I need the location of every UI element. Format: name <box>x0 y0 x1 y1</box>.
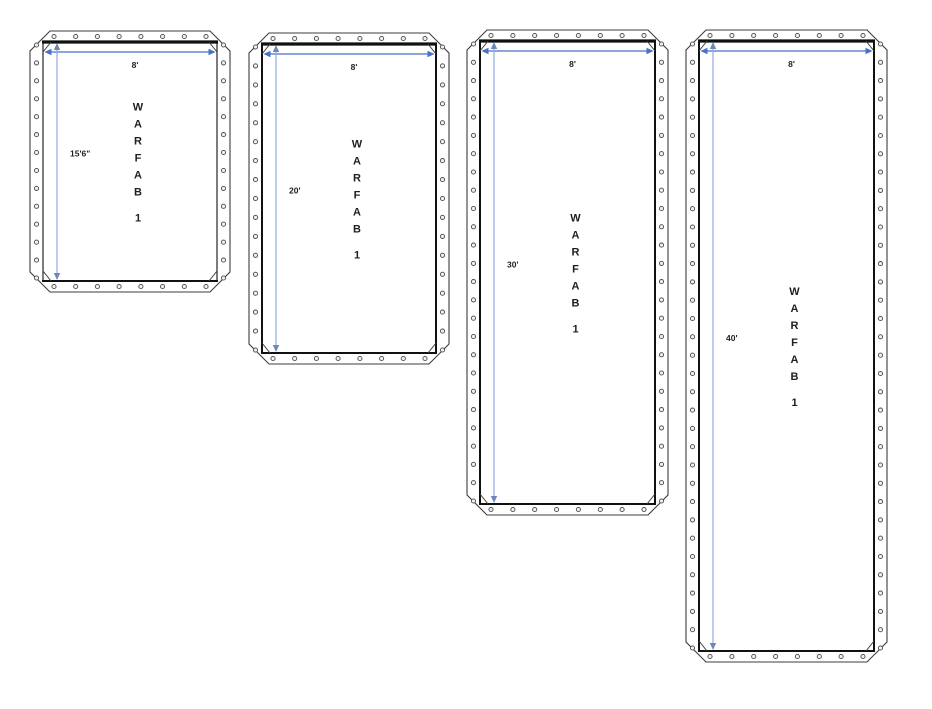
grommet <box>471 170 475 174</box>
grommet <box>423 36 427 40</box>
grommet <box>690 609 694 613</box>
grommet <box>690 518 694 522</box>
grommet <box>690 133 694 137</box>
panel-number: 1 <box>791 397 797 409</box>
grommet <box>440 310 444 314</box>
grommet <box>52 284 56 288</box>
grommet <box>878 152 882 156</box>
grommet <box>752 33 756 37</box>
grommet <box>471 133 475 137</box>
grommet <box>555 33 559 37</box>
grommet <box>878 445 882 449</box>
grommet <box>336 36 340 40</box>
grommet <box>253 310 257 314</box>
grommet <box>555 507 559 511</box>
grommet <box>659 225 663 229</box>
height-dimension-label: 15'6" <box>70 149 90 159</box>
panel-letter: W <box>352 139 363 151</box>
grommet <box>380 36 384 40</box>
grommet <box>471 206 475 210</box>
grommet <box>471 389 475 393</box>
grommet <box>401 356 405 360</box>
grommet <box>878 518 882 522</box>
grommet <box>878 170 882 174</box>
grommet <box>471 426 475 430</box>
grommet <box>34 115 38 119</box>
grommet <box>795 654 799 658</box>
grommet <box>253 253 257 257</box>
grommet <box>752 654 756 658</box>
grommet <box>659 42 663 46</box>
grommet <box>690 481 694 485</box>
grommet <box>293 356 297 360</box>
grommet <box>440 348 444 352</box>
grommet <box>730 654 734 658</box>
grommet <box>878 646 882 650</box>
grommet <box>423 356 427 360</box>
grommet <box>690 554 694 558</box>
grommet <box>74 284 78 288</box>
grommet <box>690 316 694 320</box>
grommet <box>690 207 694 211</box>
grommet <box>253 348 257 352</box>
grommet <box>253 291 257 295</box>
grommet <box>659 60 663 64</box>
grommet <box>533 507 537 511</box>
grommet <box>659 444 663 448</box>
grommet <box>253 83 257 87</box>
grommet <box>253 45 257 49</box>
grommet <box>659 334 663 338</box>
panel-number: 1 <box>354 250 360 262</box>
grommet <box>659 481 663 485</box>
grommet <box>117 284 121 288</box>
grommet <box>471 243 475 247</box>
grommet <box>690 371 694 375</box>
grommet <box>878 60 882 64</box>
grommet <box>690 188 694 192</box>
grommet <box>271 36 275 40</box>
grommet <box>471 444 475 448</box>
grommet <box>878 298 882 302</box>
grommet <box>690 152 694 156</box>
grommet <box>878 426 882 430</box>
panel-letter: W <box>133 102 144 114</box>
grommet <box>253 215 257 219</box>
grommet <box>708 654 712 658</box>
grommet <box>471 261 475 265</box>
grommet <box>659 133 663 137</box>
grommet <box>576 33 580 37</box>
grommet <box>690 445 694 449</box>
height-dimension-label: 40' <box>726 333 737 343</box>
grommet <box>878 97 882 101</box>
grommet <box>774 33 778 37</box>
grommet <box>440 178 444 182</box>
grommet <box>878 481 882 485</box>
panel-letter: R <box>134 136 142 148</box>
grommet <box>471 60 475 64</box>
grommet <box>471 481 475 485</box>
grommet <box>117 34 121 38</box>
panel-letter: W <box>789 286 800 298</box>
grommet <box>380 356 384 360</box>
grommet <box>659 353 663 357</box>
width-dimension-label: 8' <box>132 60 139 70</box>
grommet <box>690 42 694 46</box>
grommet <box>471 316 475 320</box>
grommet <box>471 462 475 466</box>
grommet <box>878 243 882 247</box>
grommet <box>221 43 225 47</box>
grommet <box>730 33 734 37</box>
grommet <box>34 168 38 172</box>
panel-8ft-x-20ft: 8'20'WARFAB1 <box>249 33 449 364</box>
grommet <box>795 33 799 37</box>
grommet <box>34 222 38 226</box>
grommet <box>690 408 694 412</box>
grommet <box>690 280 694 284</box>
height-dimension-label: 30' <box>507 260 518 270</box>
grommet <box>690 591 694 595</box>
grommet <box>253 234 257 238</box>
grommet <box>74 34 78 38</box>
width-dimension-label: 8' <box>351 62 358 72</box>
grommet <box>34 43 38 47</box>
panel-8ft-x-30ft: 8'30'WARFAB1 <box>467 30 668 515</box>
grommet <box>471 97 475 101</box>
grommet <box>690 97 694 101</box>
grommet <box>221 133 225 137</box>
panel-letter: B <box>353 224 361 236</box>
grommet <box>95 284 99 288</box>
grommet <box>659 298 663 302</box>
grommet <box>878 573 882 577</box>
grommet <box>34 97 38 101</box>
grommet <box>314 36 318 40</box>
grommet <box>878 408 882 412</box>
grommet <box>690 60 694 64</box>
panel-letter: A <box>572 281 580 293</box>
grommet <box>440 215 444 219</box>
grommet <box>471 225 475 229</box>
grommet <box>659 261 663 265</box>
grommet <box>690 262 694 266</box>
grommet <box>690 536 694 540</box>
grommet <box>271 356 275 360</box>
grommet <box>659 389 663 393</box>
grommet <box>471 353 475 357</box>
grommet <box>440 291 444 295</box>
grommet <box>659 188 663 192</box>
grommet <box>221 186 225 190</box>
panel-outer-outline <box>30 31 230 292</box>
grommet <box>817 33 821 37</box>
grommet <box>878 371 882 375</box>
grommet <box>878 353 882 357</box>
grommet <box>221 79 225 83</box>
grommet <box>253 102 257 106</box>
grommet <box>95 34 99 38</box>
grommet <box>659 206 663 210</box>
grommet <box>221 276 225 280</box>
grommet <box>34 61 38 65</box>
panel-letter: F <box>354 190 361 202</box>
grommet <box>690 646 694 650</box>
grommet <box>774 654 778 658</box>
grommet <box>598 33 602 37</box>
grommet <box>253 64 257 68</box>
panel-drawing: 8'15'6"WARFAB1 <box>30 31 230 292</box>
grommet <box>690 628 694 632</box>
panel-8ft-x-15ft6: 8'15'6"WARFAB1 <box>30 31 230 292</box>
grommet <box>182 284 186 288</box>
grommet <box>34 133 38 137</box>
grommet <box>253 272 257 276</box>
height-dimension-label: 20' <box>289 186 300 196</box>
grommet <box>659 280 663 284</box>
grommet <box>440 45 444 49</box>
grommet <box>690 170 694 174</box>
grommet <box>598 507 602 511</box>
grommet <box>401 36 405 40</box>
grommet <box>440 253 444 257</box>
grommet <box>642 33 646 37</box>
grommet <box>659 170 663 174</box>
panel-letter: B <box>791 371 799 383</box>
panel-number: 1 <box>572 324 578 336</box>
grommet <box>253 178 257 182</box>
grommet <box>878 628 882 632</box>
panel-letter: B <box>134 187 142 199</box>
grommet <box>659 408 663 412</box>
grommet <box>690 463 694 467</box>
grommet <box>839 654 843 658</box>
panel-letter: R <box>791 320 799 332</box>
grommet <box>708 33 712 37</box>
grommet <box>878 335 882 339</box>
grommet <box>878 463 882 467</box>
grommet <box>878 42 882 46</box>
grommet <box>358 356 362 360</box>
grommet <box>690 573 694 577</box>
grommet <box>659 79 663 83</box>
grommet <box>358 36 362 40</box>
width-dimension-label: 8' <box>788 59 795 69</box>
grommet <box>253 196 257 200</box>
grommet <box>471 408 475 412</box>
grommet <box>878 316 882 320</box>
grommet <box>690 79 694 83</box>
grommet <box>440 234 444 238</box>
grommet <box>34 79 38 83</box>
grommet <box>878 554 882 558</box>
grommet <box>471 79 475 83</box>
grommet <box>221 240 225 244</box>
grommet <box>878 536 882 540</box>
grommet <box>878 115 882 119</box>
grommet <box>253 121 257 125</box>
grommet <box>161 284 165 288</box>
grommet <box>690 115 694 119</box>
grommet <box>576 507 580 511</box>
grommet <box>471 334 475 338</box>
grommet <box>440 329 444 333</box>
grommet <box>471 188 475 192</box>
grommet <box>471 152 475 156</box>
grommet <box>204 284 208 288</box>
grommet <box>34 186 38 190</box>
grommet <box>336 356 340 360</box>
grommet <box>620 33 624 37</box>
grommet <box>878 390 882 394</box>
grommet <box>471 298 475 302</box>
panel-8ft-x-40ft: 8'40'WARFAB1 <box>686 30 887 662</box>
grommet <box>659 152 663 156</box>
grommet <box>221 222 225 226</box>
grommet <box>471 499 475 503</box>
panel-letter: W <box>570 213 581 225</box>
grommet <box>690 243 694 247</box>
grommet <box>690 298 694 302</box>
grommet <box>878 133 882 137</box>
grommet <box>34 204 38 208</box>
grommet <box>878 225 882 229</box>
panel-number: 1 <box>135 213 141 225</box>
grommet <box>659 462 663 466</box>
grommet <box>182 34 186 38</box>
grommet <box>489 507 493 511</box>
grommet <box>34 276 38 280</box>
panel-letter: R <box>572 247 580 259</box>
grommet <box>139 34 143 38</box>
grommet <box>221 168 225 172</box>
grommet <box>471 371 475 375</box>
grommet <box>253 159 257 163</box>
panel-letter: A <box>791 303 799 315</box>
grommet <box>659 316 663 320</box>
grommet <box>440 83 444 87</box>
grommet <box>34 258 38 262</box>
panel-letter: F <box>791 337 798 349</box>
grommet <box>878 280 882 284</box>
grommet <box>690 500 694 504</box>
grommet <box>293 36 297 40</box>
panel-drawing: 8'30'WARFAB1 <box>467 30 668 515</box>
grommet <box>471 115 475 119</box>
grommet <box>253 329 257 333</box>
panel-letter: F <box>135 153 142 165</box>
grommet <box>34 240 38 244</box>
panel-letter: R <box>353 173 361 185</box>
grommet <box>878 609 882 613</box>
grommet <box>489 33 493 37</box>
grommet <box>440 102 444 106</box>
grommet <box>221 258 225 262</box>
grommet <box>221 115 225 119</box>
grommet <box>471 42 475 46</box>
grommet <box>511 507 515 511</box>
grommet <box>314 356 318 360</box>
grommet <box>878 79 882 83</box>
grommet <box>440 272 444 276</box>
grommet <box>52 34 56 38</box>
grommet <box>659 243 663 247</box>
grommet <box>221 150 225 154</box>
grommet <box>861 33 865 37</box>
grommet <box>861 654 865 658</box>
grommet <box>690 335 694 339</box>
grommet <box>161 34 165 38</box>
grommet <box>440 121 444 125</box>
grommet <box>440 159 444 163</box>
width-dimension-label: 8' <box>569 59 576 69</box>
grommet <box>440 140 444 144</box>
grommet <box>139 284 143 288</box>
grommet <box>34 150 38 154</box>
grommet <box>440 196 444 200</box>
grommet <box>690 426 694 430</box>
panel-letter: A <box>134 119 142 131</box>
panel-letter: F <box>572 264 579 276</box>
grommet <box>221 97 225 101</box>
grommet <box>659 371 663 375</box>
panel-outer-outline <box>686 30 887 662</box>
grommet <box>204 34 208 38</box>
grommet <box>659 426 663 430</box>
grommet <box>659 499 663 503</box>
grommet <box>253 140 257 144</box>
grommet <box>817 654 821 658</box>
grommet <box>511 33 515 37</box>
panel-letter: A <box>134 170 142 182</box>
grommet <box>878 188 882 192</box>
grommet <box>533 33 537 37</box>
panel-drawing: 8'40'WARFAB1 <box>686 30 887 662</box>
grommet <box>620 507 624 511</box>
panel-letter: A <box>353 207 361 219</box>
panel-outer-outline <box>249 33 449 364</box>
grommet <box>878 500 882 504</box>
grommet <box>221 61 225 65</box>
grommet <box>690 225 694 229</box>
panel-letter: A <box>791 354 799 366</box>
grommet <box>878 262 882 266</box>
grommet <box>839 33 843 37</box>
panel-outer-outline <box>467 30 668 515</box>
grommet <box>659 115 663 119</box>
panel-letter: B <box>572 298 580 310</box>
panel-drawing: 8'20'WARFAB1 <box>249 33 449 364</box>
grommet <box>878 591 882 595</box>
grommet <box>221 204 225 208</box>
grommet <box>690 390 694 394</box>
grommet <box>659 97 663 101</box>
grommet <box>440 64 444 68</box>
drawing-canvas: 8'15'6"WARFAB18'20'WARFAB18'30'WARFAB18'… <box>0 0 932 709</box>
panel-letter: A <box>353 156 361 168</box>
grommet <box>878 207 882 211</box>
grommet <box>642 507 646 511</box>
grommet <box>690 353 694 357</box>
grommet <box>471 280 475 284</box>
panel-letter: A <box>572 230 580 242</box>
